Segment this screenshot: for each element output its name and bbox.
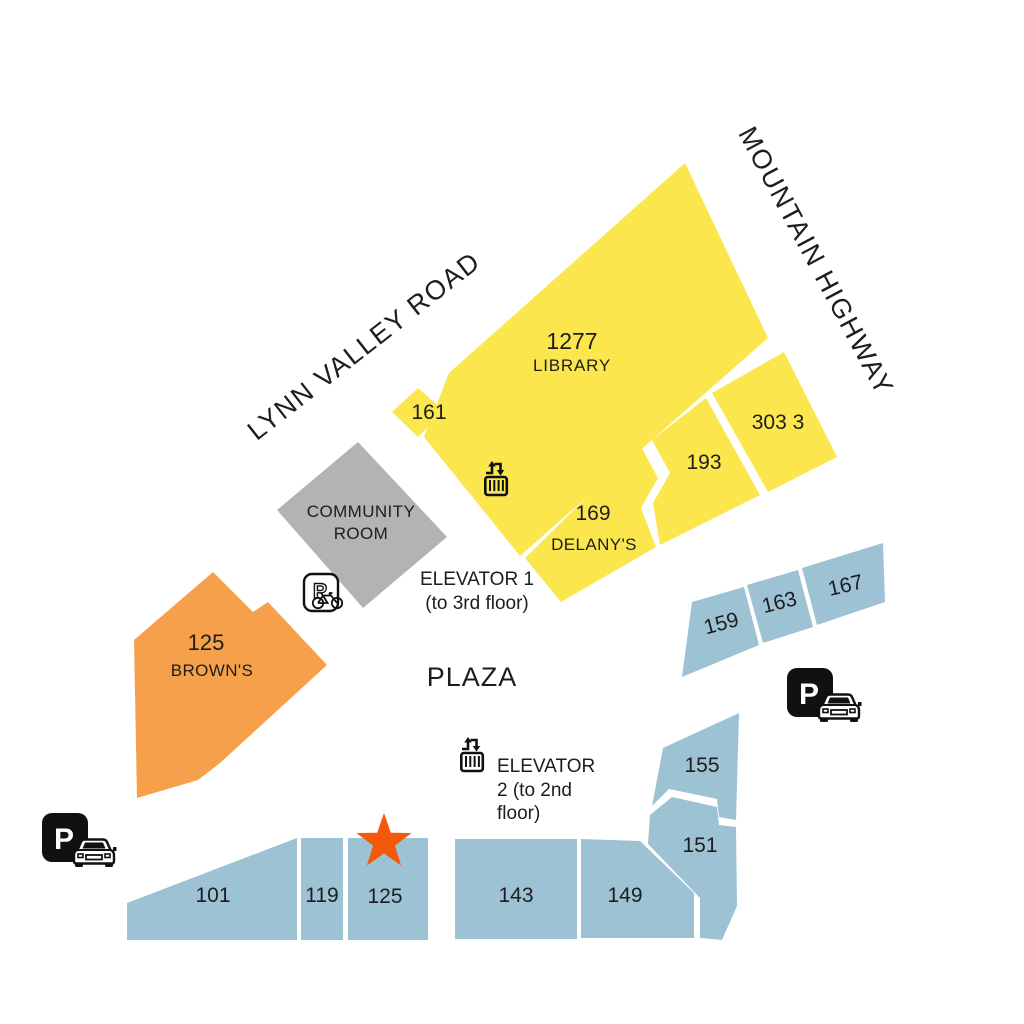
street-label: MOUNTAIN HIGHWAY	[732, 122, 899, 401]
building-169-number: 169	[575, 502, 610, 525]
building-browns-name: BROWN'S	[171, 661, 254, 680]
building-143-number: 143	[498, 884, 533, 907]
building-125-number: 125	[367, 885, 402, 908]
elevator-2-note-line1: ELEVATOR	[497, 756, 595, 777]
parking-car-icon: P	[787, 668, 862, 722]
building-library-name: LIBRARY	[533, 356, 611, 375]
building-3033-number: 303 3	[752, 411, 805, 434]
building-193-number: 193	[686, 451, 721, 474]
building-119-number: 119	[305, 884, 338, 907]
site-map: P P P LYNN VALLEY ROAD MOUNTAIN HIGHWAY …	[0, 0, 1024, 1024]
community-room-label-line2: ROOM	[334, 524, 388, 543]
elevator-2-note-line2: 2 (to 2nd	[497, 780, 572, 801]
building-169-name: DELANY'S	[551, 535, 637, 554]
elevator-2-note-line3: floor)	[497, 803, 540, 824]
building-101-number: 101	[195, 884, 230, 907]
parking-letter: P	[54, 823, 74, 856]
elevator-icon	[461, 737, 483, 771]
parking-letter: P	[799, 678, 819, 711]
building-151-number: 151	[682, 834, 717, 857]
site-map-canvas: P P P LYNN VALLEY ROAD MOUNTAIN HIGHWAY …	[0, 0, 1024, 1024]
parking-bike-icon: P	[304, 574, 342, 611]
building-browns-shape	[134, 572, 327, 798]
building-161-number: 161	[411, 401, 446, 424]
community-room-label-line1: COMMUNITY	[307, 502, 415, 521]
plaza-label: PLAZA	[427, 662, 518, 692]
elevator-1-note-line2: (to 3rd floor)	[425, 593, 528, 614]
building-browns-number: 125	[188, 630, 225, 655]
building-library-number: 1277	[546, 328, 597, 354]
building-155-number: 155	[684, 754, 719, 777]
street-mountain-highway: MOUNTAIN HIGHWAY	[732, 122, 899, 401]
building-149-number: 149	[607, 884, 642, 907]
elevator-1-note-line1: ELEVATOR 1	[420, 569, 534, 590]
parking-car-icon: P	[42, 813, 117, 867]
